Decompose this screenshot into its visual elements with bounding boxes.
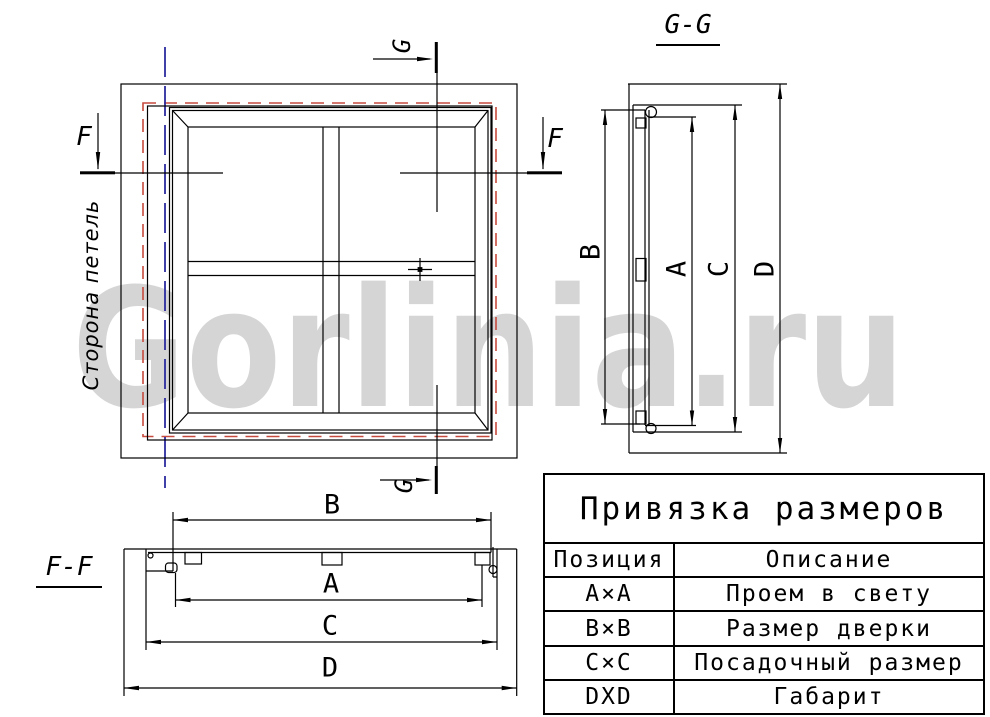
table-cell-axa: A×A — [545, 578, 675, 612]
table-cell-dxd: DXD — [545, 681, 675, 713]
f-left-tick — [80, 171, 115, 174]
ff-hinge-pin — [148, 553, 153, 558]
ff-right-bracket — [475, 553, 490, 566]
g-top-tick — [435, 42, 438, 73]
section-f-label-right: F — [547, 124, 563, 154]
f-right-tick — [527, 171, 562, 174]
table-header-description: Описание — [675, 544, 983, 578]
center-cross-square — [418, 267, 423, 272]
hinge-side-label: Сторона петель — [79, 200, 103, 391]
gg-dim-b: B — [576, 244, 607, 260]
gg-dim-a: A — [662, 261, 693, 277]
gg-top-barrel — [646, 107, 657, 118]
ff-dim-lines — [124, 520, 517, 688]
g-bottom-arrow — [416, 478, 432, 482]
f-right-arrow — [541, 152, 545, 170]
ff-dim-d: D — [322, 653, 338, 684]
table-cell-cxc: C×C — [545, 647, 675, 681]
ff-left-bracket — [185, 553, 202, 565]
table-cell-bxb-desc: Размер дверки — [675, 612, 983, 647]
table-cell-bxb: B×B — [545, 612, 675, 647]
section-g-label-top: G — [388, 39, 416, 53]
dimension-table-title: Привязка размеров — [545, 475, 983, 544]
ff-frame-profile — [124, 512, 517, 696]
gg-dim-d: D — [750, 261, 781, 277]
table-header-position: Позиция — [545, 544, 675, 578]
dimension-table: Привязка размеров Позиция Описание A×A П… — [543, 473, 985, 715]
section-ff-title: F-F — [36, 552, 102, 588]
ff-dim-a: A — [323, 569, 339, 600]
table-cell-cxc-desc: Посадочный размер — [675, 647, 983, 681]
g-top-arrow — [417, 57, 433, 61]
ff-dim-c: C — [322, 611, 338, 642]
section-gg-title: G-G — [656, 10, 720, 46]
ff-dim-b: B — [324, 490, 340, 521]
f-left-arrow — [96, 152, 100, 170]
g-bottom-tick — [435, 466, 438, 494]
table-cell-axa-desc: Проем в свету — [675, 578, 983, 612]
table-cell-dxd-desc: Габарит — [675, 681, 983, 713]
drawing-sheet: Gorlinia.ru — [0, 0, 990, 717]
section-f-label-left: F — [76, 122, 92, 152]
section-g-label-bottom: G — [390, 479, 418, 493]
gg-dim-c: C — [704, 261, 735, 277]
section-ff-view — [124, 512, 517, 696]
ff-mid-bar-section — [322, 553, 342, 566]
